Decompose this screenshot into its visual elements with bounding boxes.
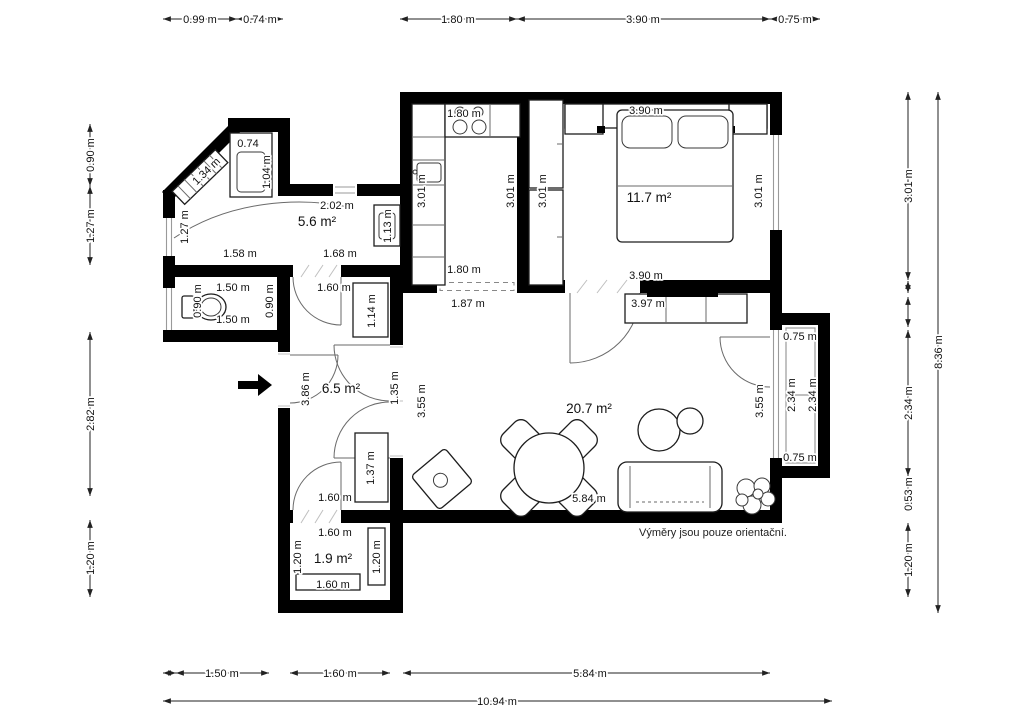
dim-left-3: 2.82 m xyxy=(85,397,97,431)
storage-width-bottom: 1.60 m xyxy=(316,579,350,591)
entry-top-dim: 2.02 m xyxy=(320,200,354,212)
entrance-arrow-icon xyxy=(238,374,272,396)
kitchen-open-passage xyxy=(437,280,517,293)
entry-width-right: 1.68 m xyxy=(323,248,357,260)
double-bed xyxy=(617,110,733,242)
pillow-right xyxy=(678,116,728,148)
small-wall-opening xyxy=(333,184,357,196)
bedroom-window xyxy=(770,135,782,230)
wall-south xyxy=(278,510,293,523)
bedroom-sideboard-dim: 3.97 m xyxy=(631,298,665,310)
dim-top-3: 1.80 m xyxy=(441,14,475,26)
living-width-dim: 5.84 m xyxy=(572,493,606,505)
sofa xyxy=(618,462,722,512)
living-depth-left: 3.55 m xyxy=(416,384,428,418)
bedroom-area-label: 11.7 m² xyxy=(627,190,672,205)
storage-depth-left: 1.20 m xyxy=(292,540,304,574)
kitchen-depth-left: 3.01 m xyxy=(416,174,428,208)
dim-bottom-total: 10.94 m xyxy=(477,696,517,708)
balcony-french-door xyxy=(770,330,782,458)
wc-width-top: 1.50 m xyxy=(216,282,250,294)
dim-bottom-3: 5.84 m xyxy=(573,668,607,680)
kitchen-width-bottom: 1.80 m xyxy=(447,264,481,276)
balcony-railing xyxy=(818,313,830,478)
kitchen-depth-right: 3.01 m xyxy=(505,174,517,208)
tv xyxy=(647,290,718,297)
storage-area-label: 1.9 m² xyxy=(314,551,353,566)
balcony-depth-top: 0.75 m xyxy=(783,331,817,343)
hall-cabinet-bottom-dim: 1.37 m xyxy=(365,451,377,485)
dim-top-1: 0.99 m xyxy=(183,14,217,26)
balcony-wall-bottom xyxy=(775,466,830,478)
wall-west xyxy=(163,190,175,218)
wc-depth-right: 0.90 m xyxy=(264,284,276,318)
entry-cabinet-dim: 1.13 m xyxy=(382,209,394,243)
wall-east xyxy=(770,92,782,135)
dim-right-4: 1.20 m xyxy=(903,543,915,577)
armchair xyxy=(411,448,473,510)
floor-plan-svg: 0.99 m 0.74 m 1.80 m 3.90 m 0.75 m 1.50 … xyxy=(0,0,1024,724)
dim-top-4: 3.90 m xyxy=(626,14,660,26)
entry-closet-depth: 1.04 m xyxy=(261,155,273,189)
wall-segment xyxy=(278,184,333,196)
living-area-label: 20.7 m² xyxy=(566,401,612,416)
bedroom-wardrobe-dim: 3.01 m xyxy=(537,174,549,208)
wc-depth-left: 0.90 m xyxy=(192,284,204,318)
wc-width-bottom: 1.50 m xyxy=(216,314,250,326)
pillow-left xyxy=(622,116,672,148)
dim-left-2: 1.27 m xyxy=(85,209,97,243)
entry-window xyxy=(163,218,175,256)
wc-window xyxy=(163,288,175,330)
faucet xyxy=(413,170,417,174)
wall-north xyxy=(400,92,782,104)
hall-area-label: 6.5 m² xyxy=(322,381,361,396)
dim-right-2: 2.34 m xyxy=(903,386,915,420)
storage-door-opening xyxy=(293,510,341,523)
balcony-length-inner: 2.34 m xyxy=(807,378,819,412)
disclaimer-text: Výměry jsou pouze orientační. xyxy=(639,527,787,539)
dim-right-total: 8.36 m xyxy=(933,335,945,369)
dim-bottom-2: 1.60 m xyxy=(323,668,357,680)
entry-closet-width: 0.74 xyxy=(237,138,258,150)
bedroom-width-bottom: 3.90 m xyxy=(629,270,663,282)
floor-plan: 0.99 m 0.74 m 1.80 m 3.90 m 0.75 m 1.50 … xyxy=(0,0,1024,724)
wall-entry-south xyxy=(341,265,412,277)
wall-storage-south xyxy=(278,600,403,613)
bedroom-width-top: 3.90 m xyxy=(629,105,663,117)
hall-door-bottom-dim: 1.60 m xyxy=(318,492,352,504)
dim-left-4: 1.20 m xyxy=(85,541,97,575)
bedroom-depth-right: 3.01 m xyxy=(753,174,765,208)
living-depth-right: 3.55 m xyxy=(754,384,766,418)
entry-width-left: 1.58 m xyxy=(223,248,257,260)
hall-door-top-dim: 1.60 m xyxy=(317,282,351,294)
hall-cabinet-top-dim: 1.14 m xyxy=(366,294,378,328)
wall-wc-south xyxy=(163,330,290,342)
entry-area-label: 5.6 m² xyxy=(298,214,337,229)
wall-kitchen-west xyxy=(400,92,412,280)
front-door-opening xyxy=(278,352,290,408)
hall-double-door-dim: 1.35 m xyxy=(389,371,401,405)
dim-right-1: 3.01 m xyxy=(903,169,915,203)
pouf-large xyxy=(638,409,680,451)
plant xyxy=(736,478,775,514)
wall-west-lower xyxy=(278,342,290,352)
dim-top-5: 0.75 m xyxy=(778,14,812,26)
dim-top-2: 0.74 m xyxy=(243,14,277,26)
entry-left-dim: 1.27 m xyxy=(179,210,191,244)
dim-bottom-1: 1.50 m xyxy=(205,668,239,680)
hall-entry-door-dim: 3.86 m xyxy=(300,372,312,406)
entry-hall-door-opening xyxy=(293,265,341,277)
pouf-small xyxy=(677,408,703,434)
wall-hall-living xyxy=(390,458,403,612)
balcony-depth-bottom: 0.75 m xyxy=(783,452,817,464)
storage-width-top: 1.60 m xyxy=(318,527,352,539)
balcony-length-outer: 2.34 m xyxy=(786,378,798,412)
balcony-door xyxy=(720,337,770,387)
storage-cabinet-dim: 1.20 m xyxy=(371,540,383,574)
kitchen-width-top: 1.80 m xyxy=(447,108,481,120)
dim-left-1: 0.90 m xyxy=(85,138,97,172)
wall-entry-south xyxy=(163,265,293,277)
kitchen-opening-dim: 1.87 m xyxy=(451,298,485,310)
dim-right-3: 0.53 m xyxy=(903,477,915,511)
